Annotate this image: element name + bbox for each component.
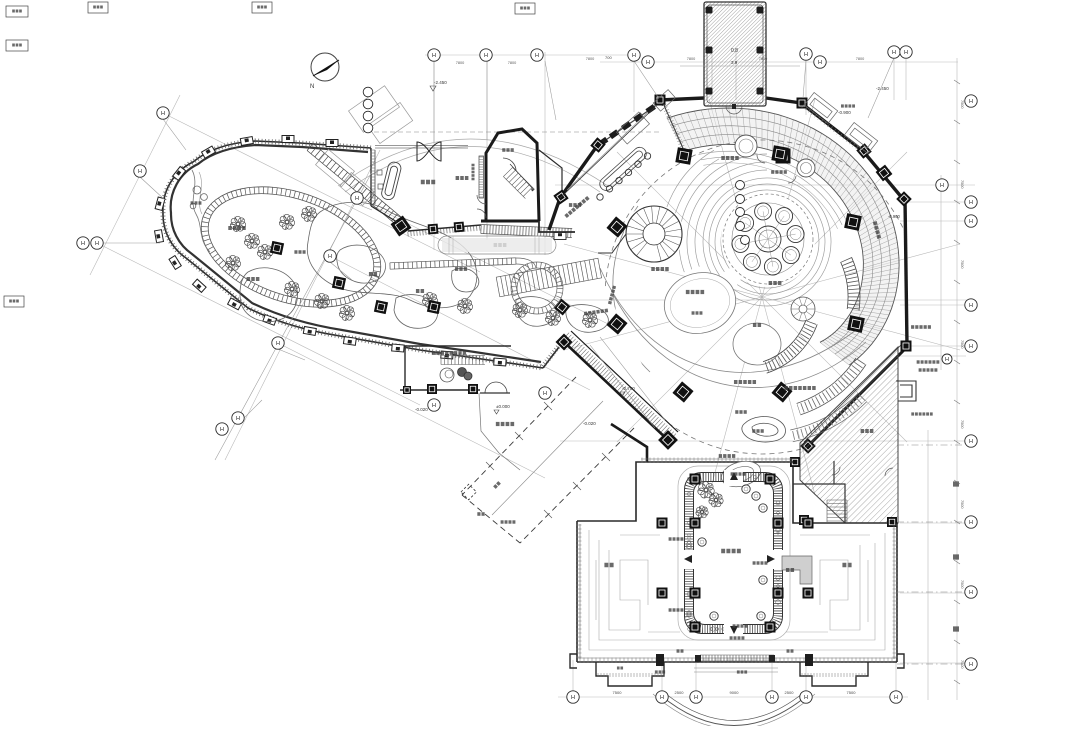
svg-text:-2.450: -2.450 <box>434 80 447 85</box>
svg-text:H: H <box>945 357 949 363</box>
svg-text:0.8: 0.8 <box>731 48 738 54</box>
svg-text:H: H <box>969 344 973 350</box>
svg-text:H: H <box>904 50 908 56</box>
svg-text:H: H <box>161 111 165 117</box>
svg-text:7500: 7500 <box>960 180 964 188</box>
svg-text:7800: 7800 <box>508 61 516 65</box>
svg-text:3.9: 3.9 <box>731 60 738 65</box>
svg-text:H: H <box>892 50 896 56</box>
svg-text:7800: 7800 <box>687 57 695 61</box>
svg-text:9000: 9000 <box>730 690 740 695</box>
svg-text:7500: 7500 <box>960 420 964 428</box>
svg-text:H: H <box>571 695 575 701</box>
svg-text:7800: 7800 <box>586 57 594 61</box>
svg-text:7500: 7500 <box>960 340 964 348</box>
svg-text:H: H <box>138 169 142 175</box>
svg-text:H: H <box>969 662 973 668</box>
svg-text:H: H <box>694 695 698 701</box>
svg-text:H: H <box>543 391 547 397</box>
svg-text:2500: 2500 <box>785 690 795 695</box>
svg-text:H: H <box>804 52 808 58</box>
svg-text:H: H <box>969 439 973 445</box>
svg-text:7500: 7500 <box>960 100 964 108</box>
svg-text:-0.020: -0.020 <box>415 407 428 412</box>
svg-text:-2.450: -2.450 <box>876 86 889 91</box>
svg-text:H: H <box>969 520 973 526</box>
svg-text:7500: 7500 <box>960 500 964 508</box>
svg-text:H: H <box>355 196 359 202</box>
svg-text:H: H <box>969 590 973 596</box>
svg-text:H: H <box>95 241 99 247</box>
svg-text:H: H <box>660 695 664 701</box>
svg-text:H: H <box>276 341 280 347</box>
svg-text:H: H <box>432 53 436 59</box>
svg-text:7800: 7800 <box>856 57 864 61</box>
svg-text:7500: 7500 <box>847 690 857 695</box>
svg-text:-0.750: -0.750 <box>622 386 635 391</box>
svg-text:H: H <box>328 254 332 260</box>
svg-text:H: H <box>770 695 774 701</box>
svg-text:H: H <box>220 427 224 433</box>
svg-text:2500: 2500 <box>675 690 685 695</box>
svg-text:H: H <box>646 60 650 66</box>
svg-text:7500: 7500 <box>960 660 964 668</box>
svg-text:H: H <box>894 695 898 701</box>
svg-text:7500: 7500 <box>613 690 623 695</box>
svg-text:H: H <box>818 60 822 66</box>
svg-text:7500: 7500 <box>960 580 964 588</box>
svg-text:-0.020: -0.020 <box>583 421 596 426</box>
svg-text:±0.000: ±0.000 <box>496 404 510 409</box>
svg-text:700: 700 <box>605 55 612 60</box>
svg-text:H: H <box>632 53 636 59</box>
svg-text:H: H <box>969 219 973 225</box>
svg-text:H: H <box>969 99 973 105</box>
svg-text:H: H <box>236 416 240 422</box>
svg-text:H: H <box>969 303 973 309</box>
svg-text:7800: 7800 <box>759 57 767 61</box>
svg-text:-0.900: -0.900 <box>888 214 901 219</box>
svg-text:H: H <box>432 403 436 409</box>
svg-text:H: H <box>81 241 85 247</box>
svg-text:H: H <box>804 695 808 701</box>
svg-text:N: N <box>310 84 314 90</box>
svg-text:H: H <box>940 183 944 189</box>
svg-text:7500: 7500 <box>960 260 964 268</box>
svg-text:H: H <box>484 53 488 59</box>
svg-text:H: H <box>535 53 539 59</box>
svg-text:7800: 7800 <box>456 61 464 65</box>
svg-text:-0.900: -0.900 <box>838 110 851 115</box>
svg-text:H: H <box>969 200 973 206</box>
